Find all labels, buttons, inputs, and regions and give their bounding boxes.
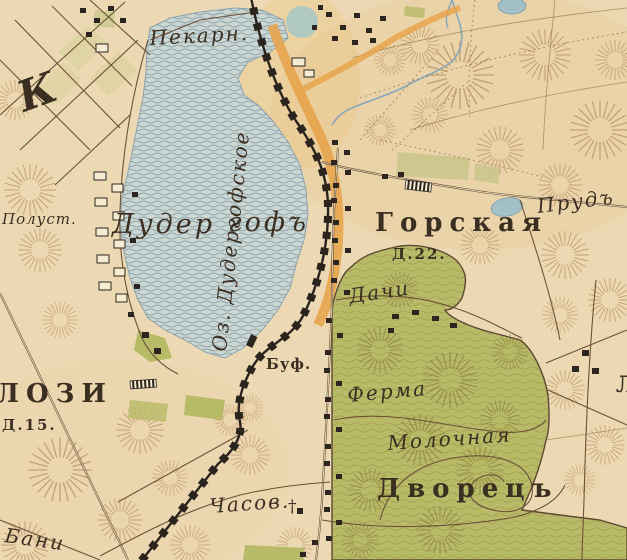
villozi-houses-label: Д.15.	[2, 416, 57, 434]
villozi-label: ЛОЗИ	[0, 379, 113, 409]
buffet-label: Буф.	[266, 355, 311, 373]
gorskaya-houses-label: Д.22.	[392, 245, 447, 263]
map-viewport[interactable]: Оз. Дудергофское Пекарн. Полуст. Дудер г…	[0, 0, 627, 560]
duderhof-label-left: Дудер	[111, 209, 215, 240]
duderhof-label-right: гофъ	[228, 207, 309, 238]
chapel-building	[297, 508, 303, 514]
halt-label: Полуст.	[1, 210, 77, 228]
clipped-edge-letter: Л	[616, 372, 627, 398]
chapel-cross-icon: †	[288, 497, 297, 517]
pond	[498, 0, 526, 14]
striped-building	[130, 379, 156, 389]
map-canvas: Оз. Дудергофское Пекарн. Полуст. Дудер г…	[0, 0, 627, 560]
marsh	[286, 6, 318, 38]
palace-label: Дворецъ	[377, 474, 558, 504]
gorskaya-label: Горская	[375, 208, 548, 238]
